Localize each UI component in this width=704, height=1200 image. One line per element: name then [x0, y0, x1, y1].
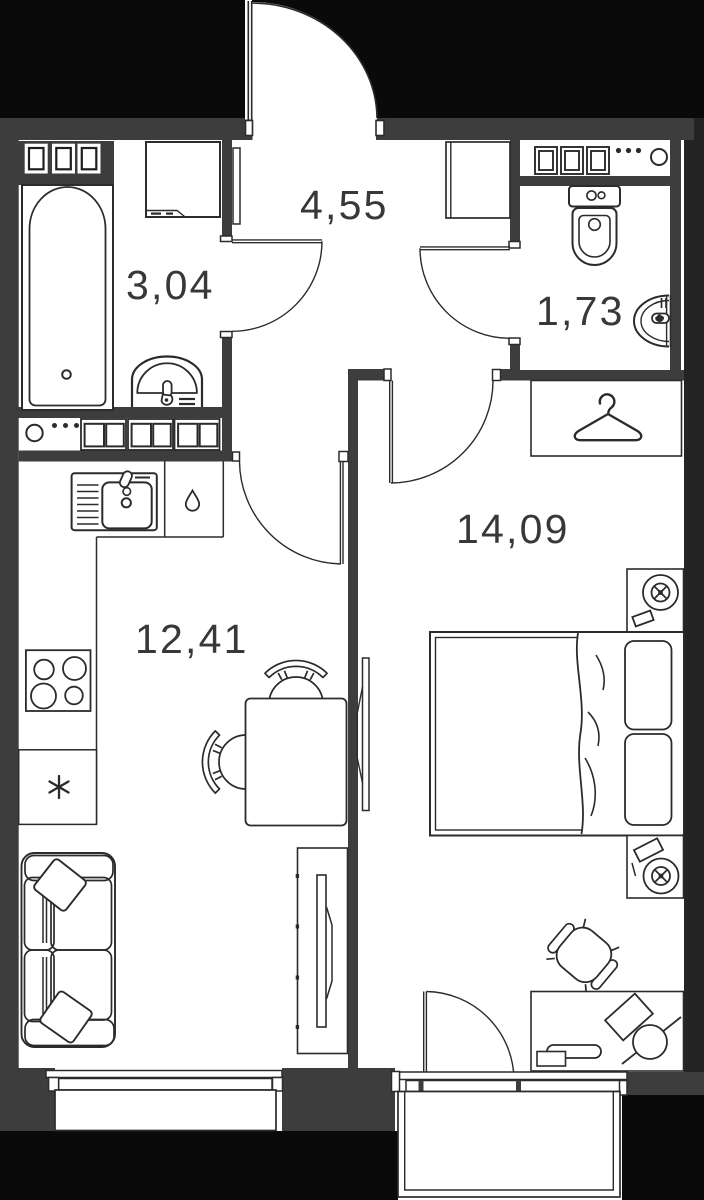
svg-text:14,09: 14,09	[456, 506, 570, 552]
svg-text:1,73: 1,73	[536, 288, 625, 334]
svg-text:4,55: 4,55	[300, 182, 389, 228]
svg-text:3,04: 3,04	[126, 262, 215, 308]
svg-text:12,41: 12,41	[135, 616, 249, 662]
